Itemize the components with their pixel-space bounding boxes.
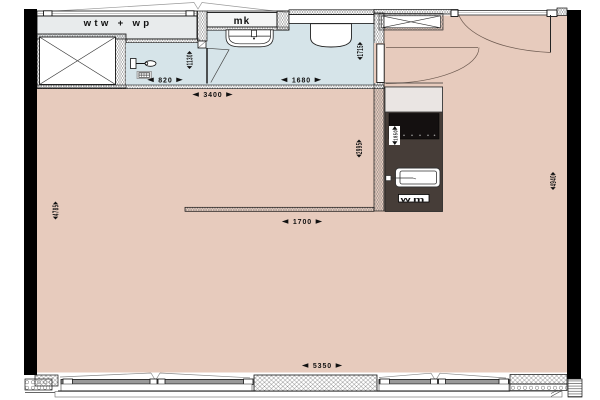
svg-text:wm: wm [399, 196, 426, 203]
svg-text:5350: 5350 [313, 363, 332, 370]
svg-text:4785: 4785 [52, 204, 61, 216]
svg-text:820: 820 [158, 77, 172, 84]
svg-text:1715: 1715 [357, 45, 366, 57]
svg-text:mk: mk [234, 16, 251, 27]
svg-text:1680: 1680 [292, 77, 311, 84]
svg-text:1850: 1850 [393, 130, 400, 141]
svg-text:1700: 1700 [293, 219, 312, 226]
svg-text:4940: 4940 [550, 175, 559, 187]
svg-text:2995: 2995 [356, 142, 365, 154]
svg-text:wtw + wp: wtw + wp [83, 18, 153, 29]
svg-text:1130: 1130 [186, 54, 195, 65]
svg-text:3400: 3400 [203, 92, 222, 99]
